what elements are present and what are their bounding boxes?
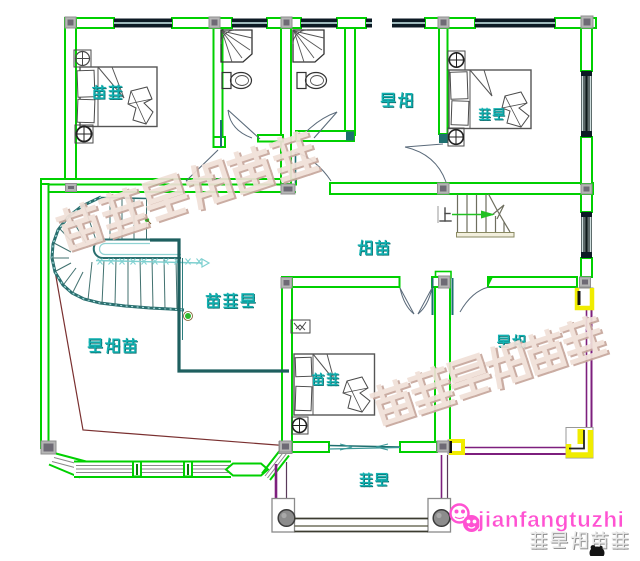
svg-text:jianfangtuzhi: jianfangtuzhi bbox=[477, 507, 625, 532]
